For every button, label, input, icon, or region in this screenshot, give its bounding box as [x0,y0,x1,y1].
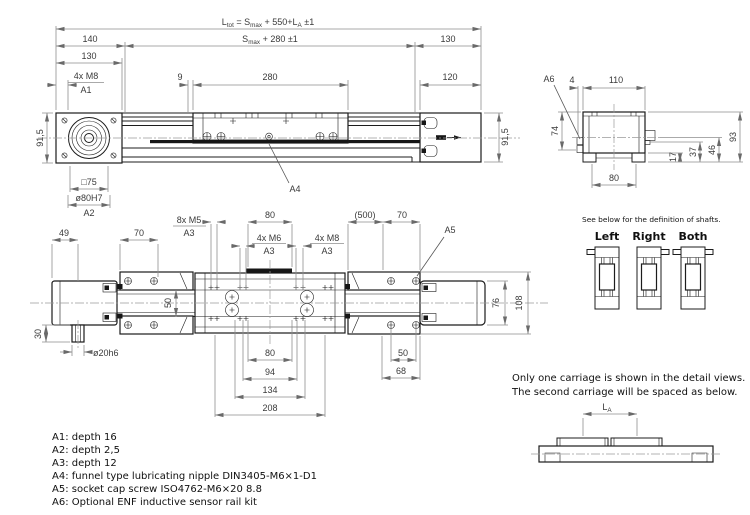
note-a1: A1: depth 16 [52,432,117,443]
label-a5: A5 [444,225,455,235]
note-a5: A5: socket cap screw ISO4762-M6×20 8.8 [52,484,262,495]
carriage-spacing-drawing [531,414,721,462]
dim-130-left: 130 [81,51,96,61]
dim-110: 110 [609,75,623,85]
dim-500-ref: (500) [354,210,375,220]
carriage-note-line1: Only one carriage is shown in the detail… [512,373,745,384]
dim-49: 49 [59,228,69,238]
dim-74: 74 [550,126,560,136]
dim-80-bottom: 80 [265,348,275,358]
dim-80-end: 80 [609,173,619,183]
side-view-geometry [38,113,520,163]
note-a3: A3: depth 12 [52,458,117,469]
technical-drawing-page: Ltot = Smax + 550+LA ±1 140 Smax + 280 ±… [0,0,750,515]
label-a3-m6: A3 [263,246,274,256]
shaft-definitions: See below for the definition of shafts. … [582,215,721,309]
dim-square-75: □75 [81,177,96,187]
dim-94: 94 [265,367,275,377]
dim-smax-280: Smax + 280 ±1 [242,34,298,46]
note-a6: A6: Optional ENF inductive sensor rail k… [52,497,257,508]
shaft-label-left: Left [595,230,620,243]
dim-9: 9 [177,72,182,82]
notes-list: A1: depth 16 A2: depth 2,5 A3: depth 12 … [52,432,317,508]
linear-actuator-dimension-drawing: Ltot = Smax + 550+LA ±1 140 Smax + 280 ±… [0,0,750,515]
label-a2: A2 [83,208,94,218]
dim-17: 17 [668,152,678,162]
dim-50-mid: 50 [163,298,173,308]
shaft-diagram-left [587,247,619,309]
dim-dia-80h7: ø80H7 [75,193,102,203]
side-view: Ltot = Smax + 550+LA ±1 140 Smax + 280 ±… [35,17,520,218]
dim-68: 68 [396,366,406,376]
dim-70-right: 70 [397,210,407,220]
shaft-note: See below for the definition of shafts. [582,215,721,224]
dim-93: 93 [728,132,738,142]
label-a3-m5: A3 [183,228,194,238]
dim-140: 140 [82,34,97,44]
dim-4x-m6: 4x M6 [257,233,282,243]
dim-91-5-right: 91,5 [500,128,510,146]
dim-108: 108 [514,295,524,310]
end-view-dimensions [554,85,743,188]
note-a4: A4: funnel type lubricating nipple DIN34… [52,471,317,482]
carriage-note-line2: The second carriage will be spaced as be… [511,387,737,398]
dim-80-top: 80 [265,210,275,220]
dim-91-5-left: 91,5 [35,129,45,147]
dim-76: 76 [491,298,501,308]
shaft-label-right: Right [632,230,665,243]
dim-37: 37 [688,147,698,157]
note-a2: A2: depth 2,5 [52,445,120,456]
carriage-spacing-note: Only one carriage is shown in the detail… [511,373,745,462]
dim-46: 46 [707,145,717,155]
label-a6: A6 [543,74,554,84]
dim-8x-m5: 8x M5 [177,215,202,225]
dim-280: 280 [262,72,277,82]
plan-view: 49 70 8x M5 A3 80 4x M6 A3 4x M8 A3 (500… [30,210,548,417]
dim-4: 4 [569,75,574,85]
dim-4x-m8-plan: 4x M8 [315,233,340,243]
dim-120: 120 [442,72,457,82]
dim-70-left: 70 [134,228,144,238]
shaft-diagram-right [637,247,669,309]
dim-4x-m8: 4x M8 [74,71,99,81]
dim-208: 208 [262,403,277,413]
label-a3-m8: A3 [321,246,332,256]
end-view: A6 4 110 74 93 46 37 17 80 [543,74,743,188]
end-view-geometry [572,104,662,170]
label-a1: A1 [80,85,91,95]
label-a4: A4 [289,184,300,194]
dim-ltot: Ltot = Smax + 550+LA ±1 [222,17,314,29]
shaft-diagram-both [673,247,713,309]
dim-30: 30 [33,329,43,339]
dim-134: 134 [262,385,277,395]
plan-view-geometry [30,260,548,349]
dim-dia-20h6: ø20h6 [93,348,119,358]
dim-130-right: 130 [440,34,455,44]
dim-la: LA [602,402,612,414]
shaft-label-both: Both [678,230,707,243]
dim-50-right: 50 [398,348,408,358]
